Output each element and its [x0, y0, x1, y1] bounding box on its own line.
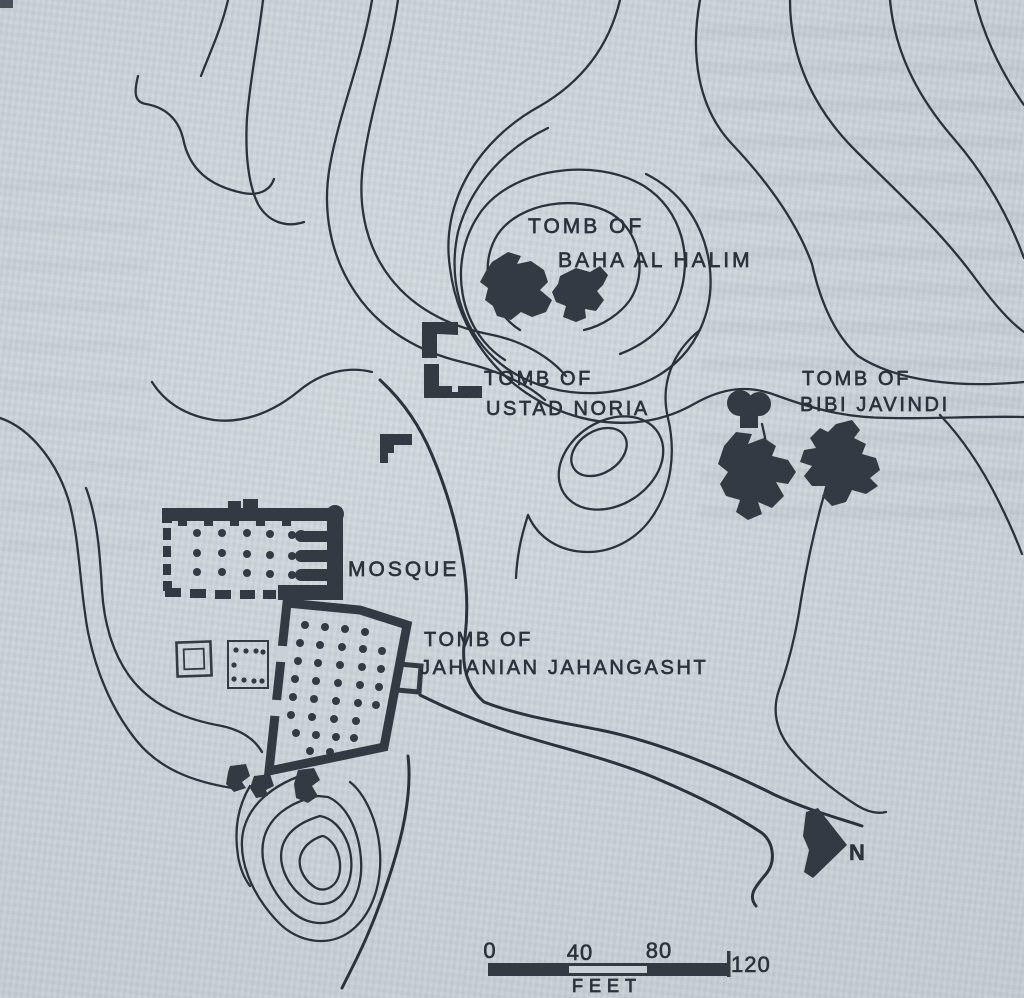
bibi-javindi-footprint: [800, 420, 880, 506]
column-dot: [218, 568, 226, 576]
column-dot: [193, 549, 201, 557]
column-dot: [338, 643, 346, 651]
mosque-wall-bump: [243, 499, 258, 509]
column-dot: [341, 625, 349, 633]
column-dot: [332, 697, 340, 705]
column-dot: [291, 675, 299, 683]
mosque-west-wall-dash: [163, 564, 171, 575]
map-detail: [282, 646, 283, 662]
contour-line: [890, 0, 1024, 258]
column-dot: [336, 661, 344, 669]
contour-line: [201, 0, 228, 76]
contour-ring: [262, 796, 361, 923]
column-dot: [358, 663, 366, 671]
contour-line: [790, 0, 1024, 332]
ustad-noria-footprint: [380, 434, 412, 463]
column-dot: [218, 549, 226, 557]
mosque-pier-knob: [295, 530, 307, 542]
jahanian-tomb-plan: [269, 603, 421, 771]
bibi-javindi-footprint: [718, 432, 796, 520]
column-dot: [301, 621, 309, 629]
label-baha-line1: TOMB OF: [528, 215, 644, 238]
column-dot: [306, 747, 314, 755]
scale-tick-40: 40: [567, 940, 593, 965]
mosque-pier-knob: [295, 569, 307, 581]
map-detail: [276, 700, 277, 716]
contour-line: [152, 370, 372, 421]
mosque-wall-bump: [230, 519, 239, 526]
column-dot: [251, 678, 256, 683]
column-dot: [266, 530, 274, 538]
contour-line: [420, 695, 772, 906]
column-dot: [243, 529, 251, 537]
column-dot: [241, 677, 246, 682]
dotted-room: [228, 641, 268, 688]
square-enclosure-outer: [176, 641, 211, 676]
contour-line: [940, 415, 1022, 554]
column-dot: [372, 701, 380, 709]
mosque-south-wall-dash: [190, 589, 206, 598]
contour-line: [696, 0, 1024, 384]
north-arrow-label: N: [849, 840, 865, 865]
column-dot: [334, 679, 342, 687]
scale-tick-0: 0: [483, 938, 496, 963]
column-dot: [243, 648, 248, 653]
scale-bar-open-segment: [569, 966, 647, 973]
column-dot: [260, 649, 265, 654]
column-dot: [326, 748, 334, 756]
column-dot: [316, 641, 324, 649]
column-dot: [292, 729, 300, 737]
column-dot: [308, 713, 316, 721]
label-ustad-line2: USTAD NORIA: [486, 398, 650, 420]
column-dot: [231, 662, 236, 667]
column-dot: [354, 699, 362, 707]
column-dot: [287, 711, 295, 719]
scale-bar: 0 40 80 120 FEET: [483, 938, 770, 996]
column-dot: [193, 529, 201, 537]
column-dot: [243, 569, 251, 577]
ustad-noria-footprint: [422, 322, 458, 358]
column-dot: [375, 683, 383, 691]
contour-line: [246, 0, 304, 224]
courtyard-square: [176, 641, 211, 676]
column-dot: [332, 733, 340, 741]
column-dot: [243, 550, 251, 558]
bibi-javindi-footprint: [740, 408, 758, 428]
ustad-noria-footprint: [424, 364, 482, 398]
scale-tick-80: 80: [646, 938, 672, 963]
contour-ring: [300, 836, 340, 890]
column-dot: [359, 645, 367, 653]
column-dot: [352, 717, 360, 725]
mosque-wall-bump: [178, 519, 187, 526]
column-dot: [288, 531, 296, 539]
column-dot: [259, 678, 264, 683]
column-dot: [218, 529, 226, 537]
column-dot: [312, 731, 320, 739]
column-dot: [193, 568, 201, 576]
column-dot: [288, 571, 296, 579]
label-jahanian-line2: JAHANIAN JAHANGASHT: [420, 657, 708, 679]
mosque-south-wall-dash: [215, 590, 231, 599]
mosque-wall-bump: [282, 519, 291, 526]
mosque-west-wall-dash: [162, 508, 172, 523]
column-dot: [266, 570, 274, 578]
ruin-fragment: [294, 768, 320, 803]
contour-ring: [281, 816, 351, 904]
contour-line: [0, 418, 232, 788]
mosque-wall-bump: [228, 501, 241, 510]
mosque-south-wall-dash: [263, 590, 276, 599]
column-dot: [266, 551, 274, 559]
mosque-wall-bump: [256, 519, 265, 526]
site-plan-map: TOMB OF BAHA AL HALIM TOMB OF USTAD NORI…: [0, 0, 1024, 998]
contour-lines: [0, 0, 1024, 988]
contour-line: [776, 468, 886, 813]
column-dot: [253, 648, 258, 653]
label-bibi-line1: TOMB OF: [802, 368, 911, 390]
contour-line: [975, 0, 1024, 105]
baha-al-halim-footprint: [552, 266, 608, 322]
label-baha-line2: BAHA AL HALIM: [558, 249, 753, 272]
column-dot: [289, 693, 297, 701]
column-dot: [288, 552, 296, 560]
column-dot: [321, 623, 329, 631]
mosque-pier-knob: [295, 550, 307, 562]
mosque-plan: [162, 499, 344, 600]
mosque-west-wall-dash: [163, 528, 171, 540]
column-dot: [377, 665, 385, 673]
contour-line: [380, 380, 862, 826]
column-dot: [361, 628, 369, 636]
column-dot: [294, 657, 302, 665]
scale-unit-label: FEET: [572, 976, 642, 996]
column-dot: [233, 647, 238, 652]
contour-line: [448, 0, 1024, 423]
baha-al-halim-footprint: [480, 252, 552, 320]
column-dot: [350, 734, 358, 742]
ruin-fragment: [250, 774, 274, 798]
column-dot: [231, 676, 236, 681]
contour-line: [86, 488, 262, 752]
mosque-south-wall-dash: [240, 590, 255, 599]
scale-bar-tick-120: [727, 951, 731, 977]
label-jahanian-line1: TOMB OF: [424, 629, 533, 651]
mosque-south-wall-dash: [165, 588, 181, 597]
column-dot: [356, 681, 364, 689]
contour-line: [136, 76, 274, 194]
mosque-wall-bump: [204, 519, 213, 526]
mosque-southeast-mass: [278, 585, 342, 600]
label-mosque: MOSQUE: [348, 558, 459, 581]
label-bibi-line2: BIBI JAVINDI: [800, 394, 950, 416]
column-dot: [378, 647, 386, 655]
label-ustad-line1: TOMB OF: [484, 368, 593, 390]
column-dot: [312, 677, 320, 685]
column-dot: [314, 659, 322, 667]
mosque-west-wall-dash: [163, 546, 171, 557]
scale-tick-120: 120: [731, 952, 771, 977]
contour-ring: [562, 418, 635, 486]
scan-edge-mark: [0, 0, 13, 8]
column-dot: [330, 715, 338, 723]
column-dot: [310, 695, 318, 703]
square-enclosure-inner: [184, 649, 205, 670]
mosque-north-wall: [162, 508, 342, 521]
column-dot: [296, 639, 304, 647]
